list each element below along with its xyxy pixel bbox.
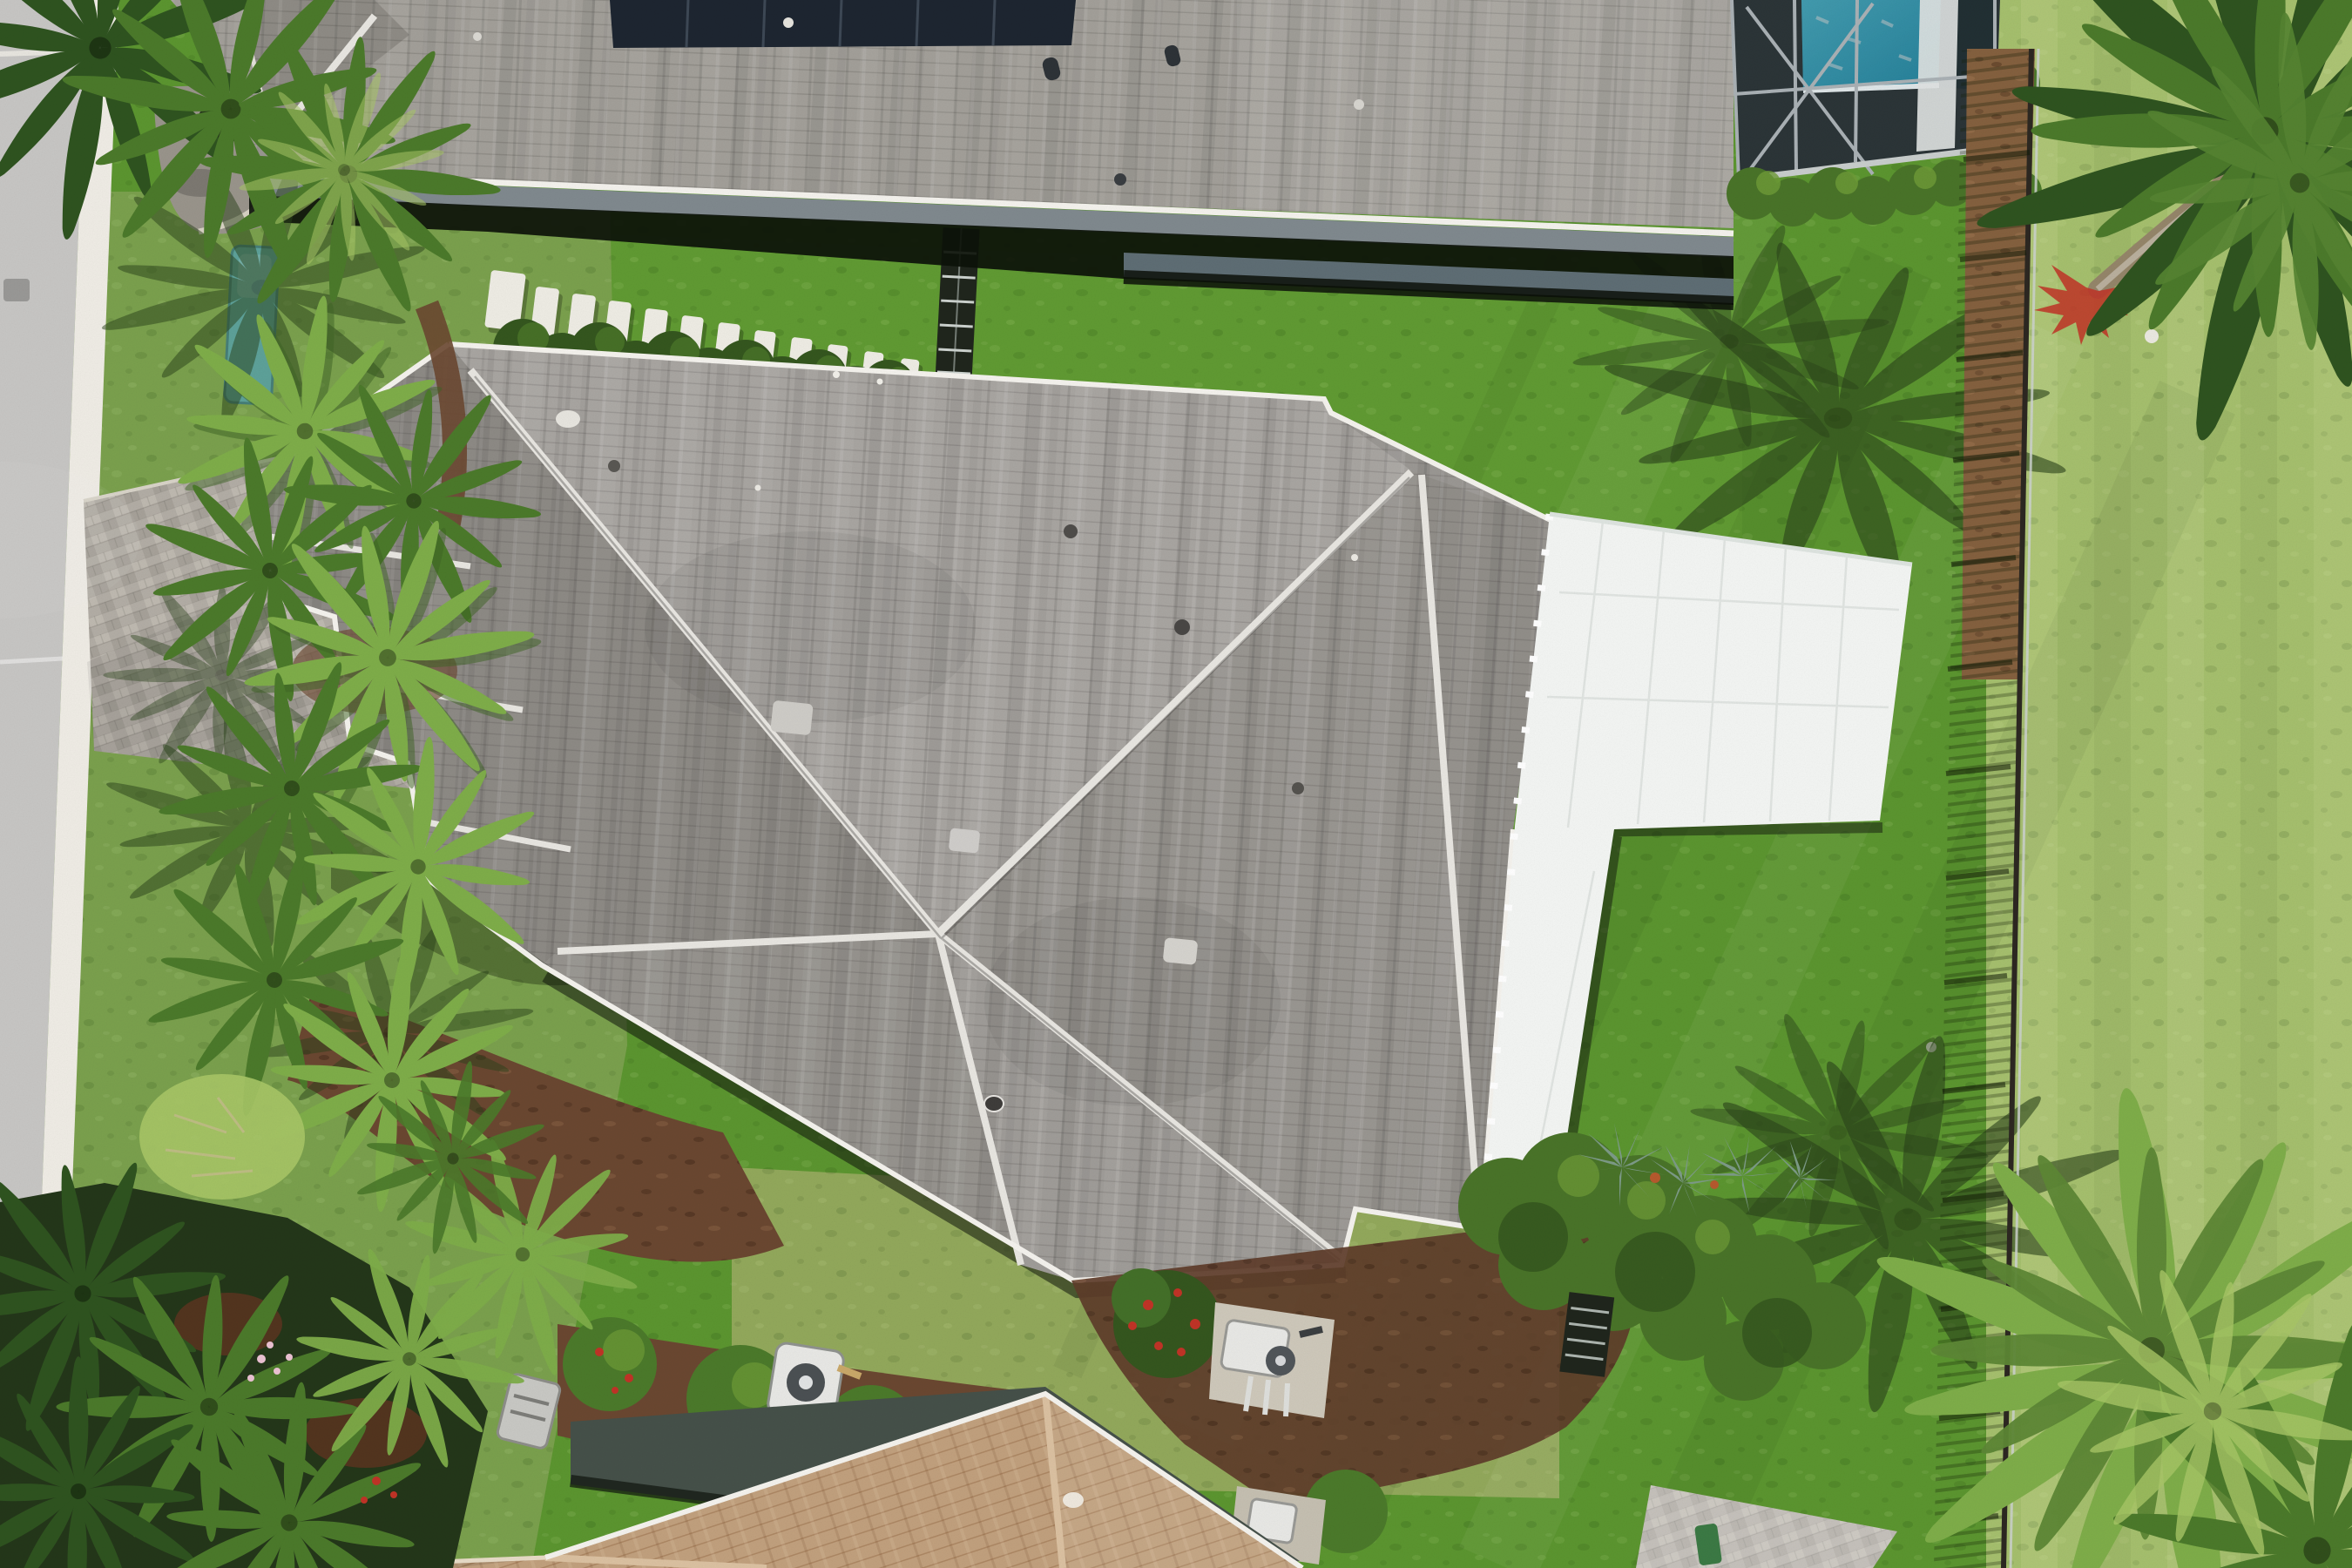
photo-grain	[0, 0, 2352, 1568]
aerial-photo	[0, 0, 2352, 1568]
aerial-scene	[0, 0, 2352, 1568]
